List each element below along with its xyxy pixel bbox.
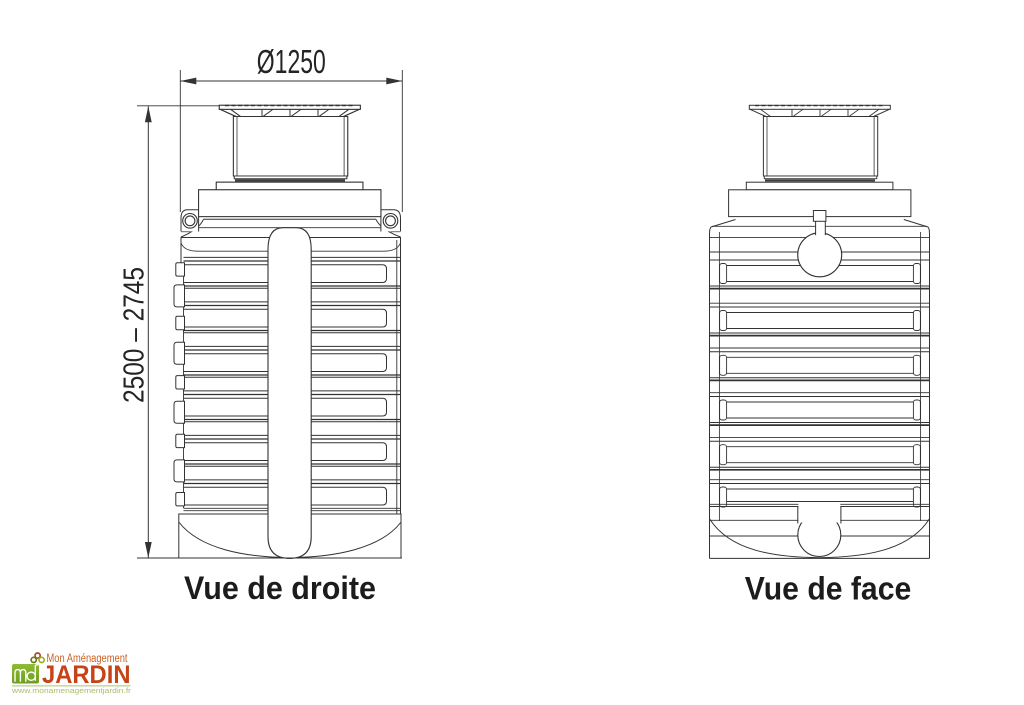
svg-text:www.monamenagementjardin.fr: www.monamenagementjardin.fr — [11, 688, 132, 695]
svg-text:Vue de droite: Vue de droite — [184, 570, 376, 606]
svg-text:Ø1250: Ø1250 — [257, 44, 326, 81]
svg-text:JARDIN: JARDIN — [42, 661, 131, 689]
svg-text:Vue de face: Vue de face — [745, 571, 912, 607]
svg-text:2500 – 2745: 2500 – 2745 — [119, 267, 151, 403]
